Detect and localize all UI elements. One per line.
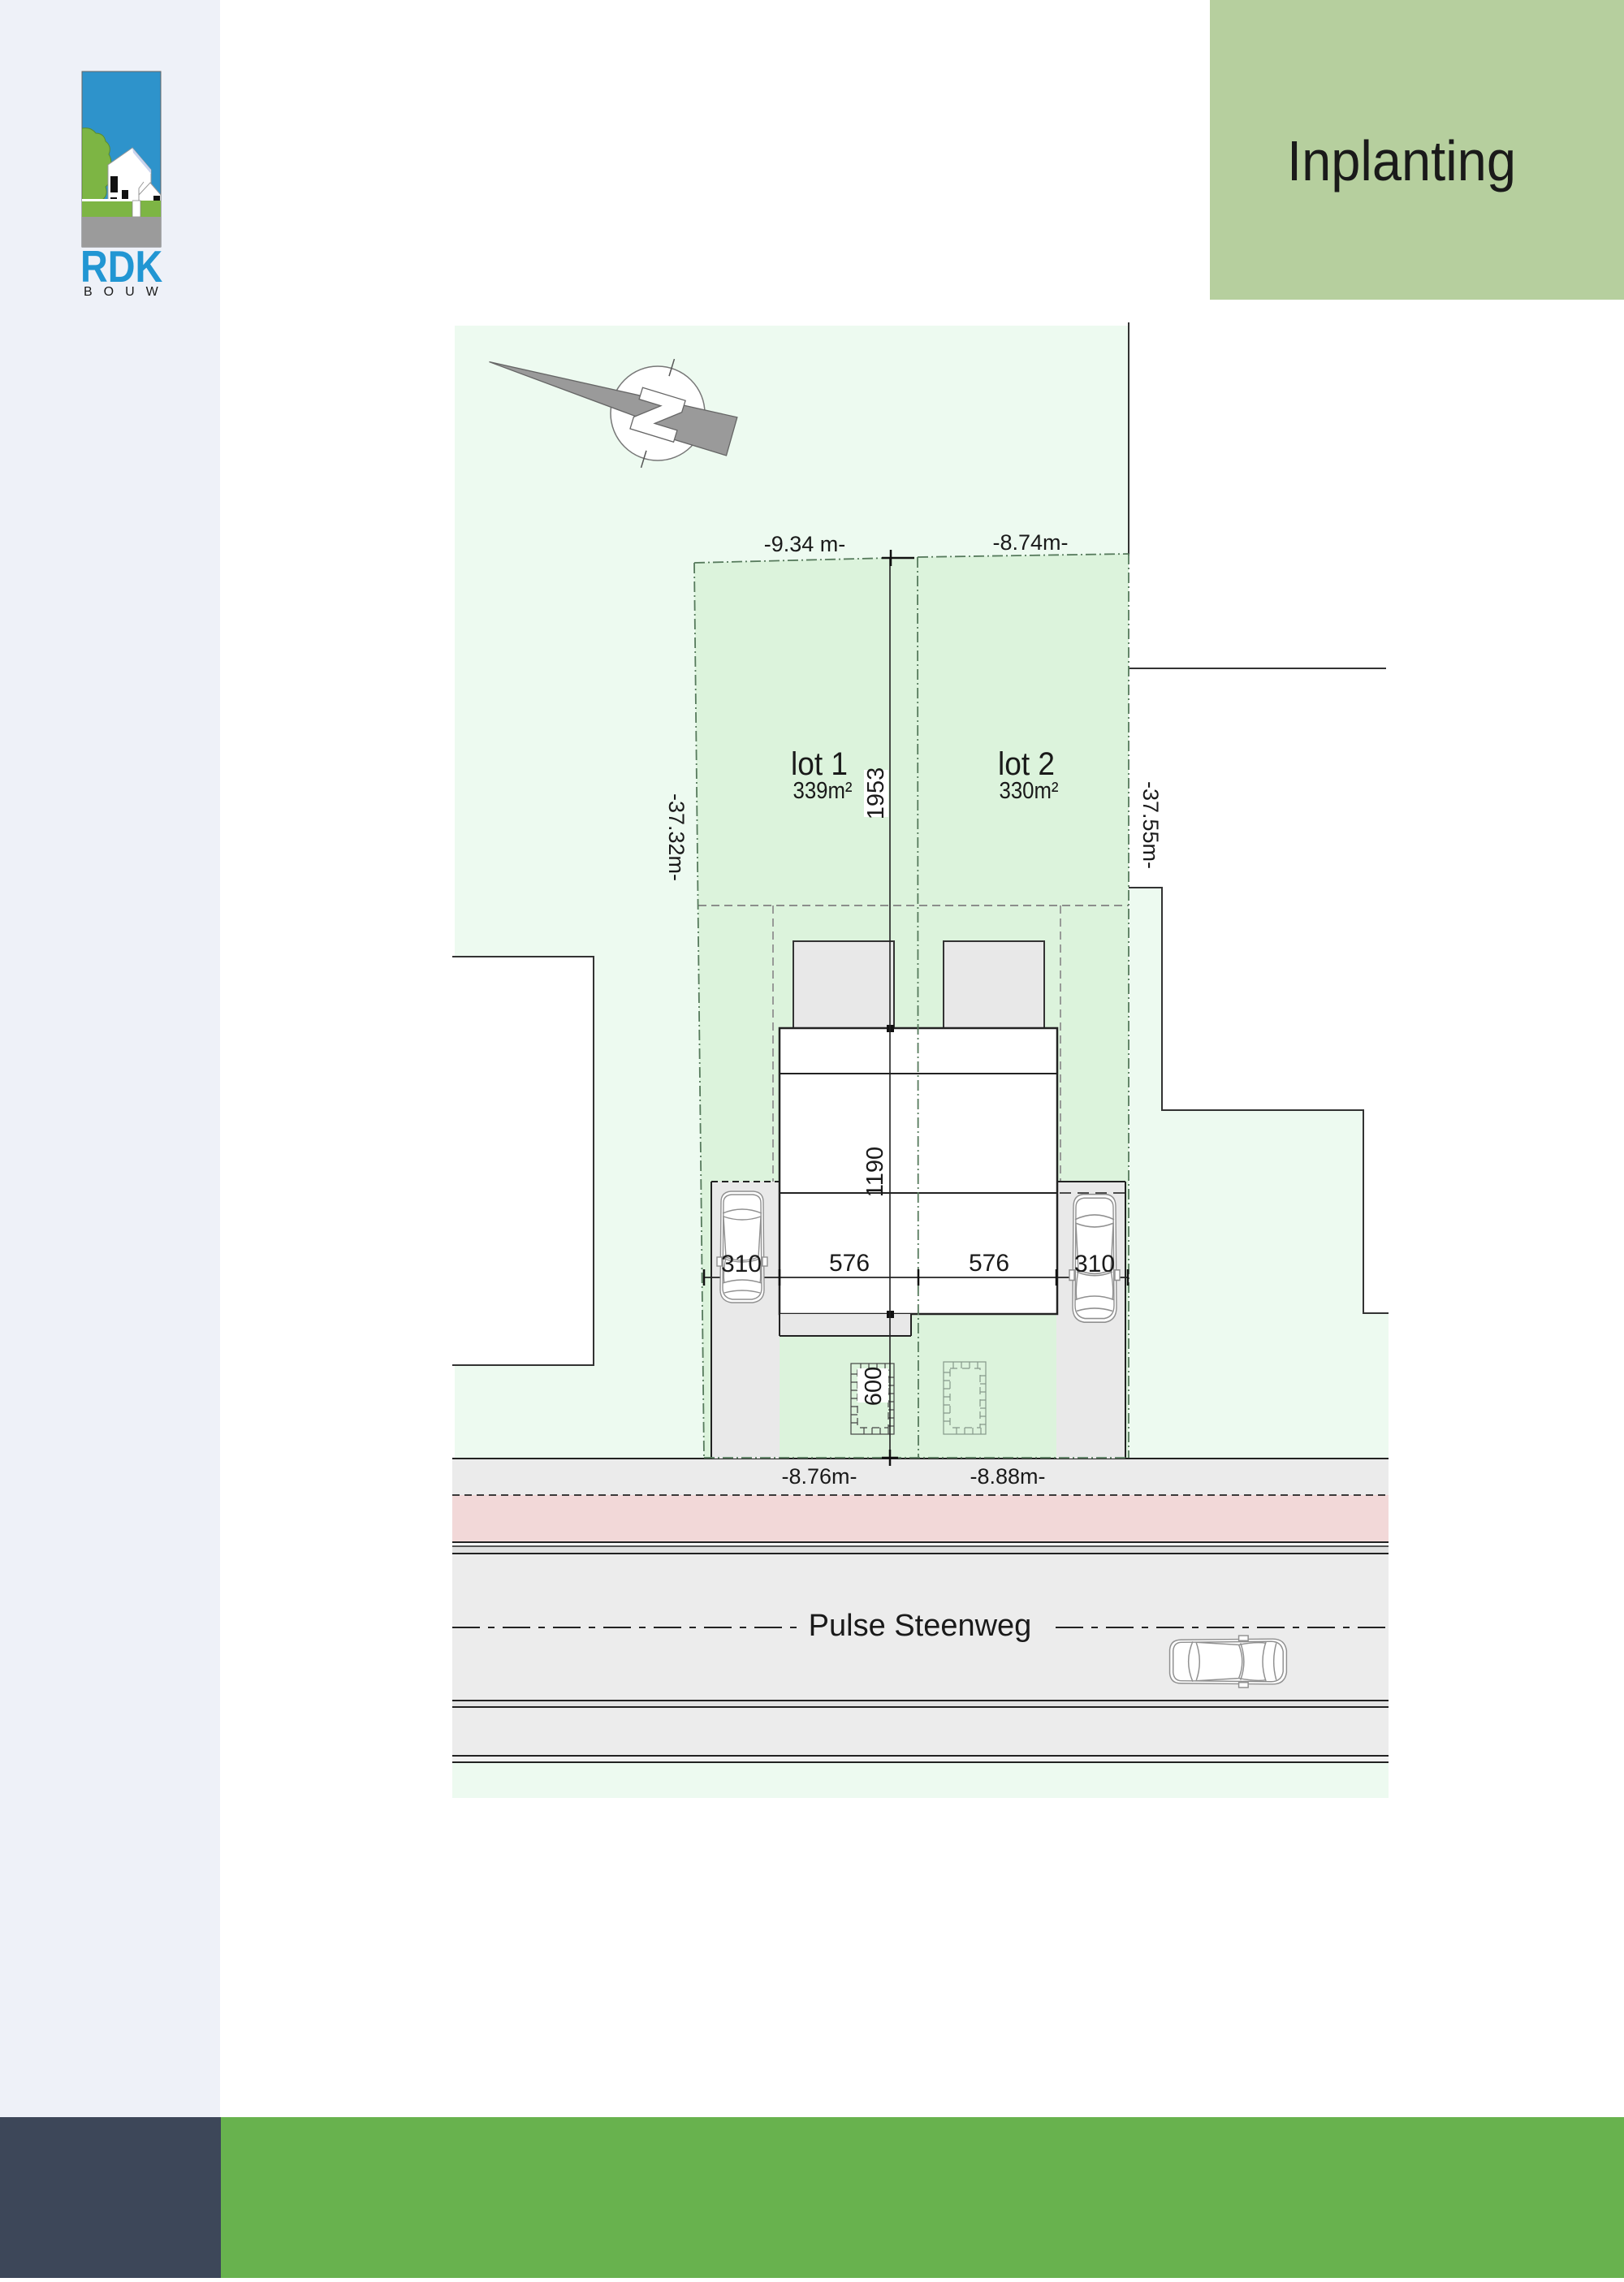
svg-text:lot 1: lot 1	[791, 746, 848, 782]
svg-text:1190: 1190	[862, 1147, 888, 1197]
svg-text:576: 576	[969, 1250, 1009, 1277]
svg-text:600: 600	[861, 1367, 887, 1406]
svg-text:310: 310	[1074, 1251, 1115, 1277]
svg-text:-8.74m-: -8.74m-	[992, 530, 1068, 555]
svg-text:339m²: 339m²	[793, 778, 853, 804]
svg-text:-37.32m-: -37.32m-	[664, 793, 689, 881]
svg-text:Inplanting: Inplanting	[1287, 129, 1516, 192]
svg-text:-9.34 m-: -9.34 m-	[764, 532, 846, 556]
svg-text:330m²: 330m²	[1000, 778, 1059, 804]
svg-text:BOUW: BOUW	[84, 285, 170, 299]
svg-text:RDK: RDK	[80, 241, 162, 291]
svg-text:576: 576	[829, 1250, 870, 1277]
svg-text:lot 2: lot 2	[998, 746, 1055, 782]
svg-text:-8.88m-: -8.88m-	[970, 1464, 1045, 1489]
svg-text:-37.55m-: -37.55m-	[1138, 781, 1163, 869]
svg-text:Pulse Steenweg: Pulse Steenweg	[809, 1609, 1032, 1643]
svg-text:310: 310	[721, 1251, 762, 1277]
svg-text:-8.76m-: -8.76m-	[781, 1464, 857, 1489]
svg-text:1953: 1953	[863, 767, 889, 820]
